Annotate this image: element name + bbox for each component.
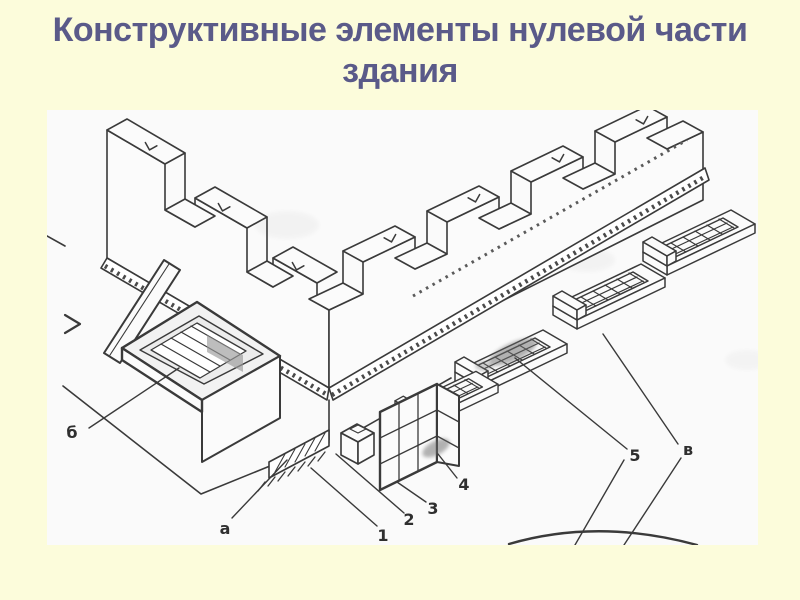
callout-label-b: б [66, 423, 77, 442]
callout-label-a: а [220, 519, 231, 538]
leader-a [232, 460, 287, 518]
rebar-lattice [380, 384, 459, 490]
foundation-block-cube [341, 424, 374, 464]
callout-label-5: 5 [629, 446, 640, 465]
slide-title: Конструктивные элементы нулевой части зд… [0, 10, 800, 93]
callout-label-2: 2 [403, 510, 414, 529]
leader-v-up [603, 334, 678, 444]
callout-label-4: 4 [458, 475, 469, 494]
left-chevron-mark [65, 315, 80, 333]
callout-label-1: 1 [377, 526, 388, 545]
title-line-1: Конструктивные элементы нулевой части [0, 10, 800, 51]
detail-arc [509, 531, 697, 545]
leader-5-up [515, 358, 627, 449]
drawing-svg: б а 1 2 3 4 5 в [47, 110, 758, 545]
callout-label-v: в [683, 440, 693, 459]
leader-3 [397, 482, 426, 502]
figure-panel: б а 1 2 3 4 5 в [47, 110, 758, 545]
leader-b [89, 368, 179, 428]
callout-label-3: 3 [427, 499, 438, 518]
slide: Конструктивные элементы нулевой части зд… [0, 0, 800, 600]
title-line-2: здания [0, 51, 800, 92]
leader-1 [311, 468, 377, 526]
leader-v-down [624, 458, 681, 545]
foundation-pad [553, 264, 665, 329]
